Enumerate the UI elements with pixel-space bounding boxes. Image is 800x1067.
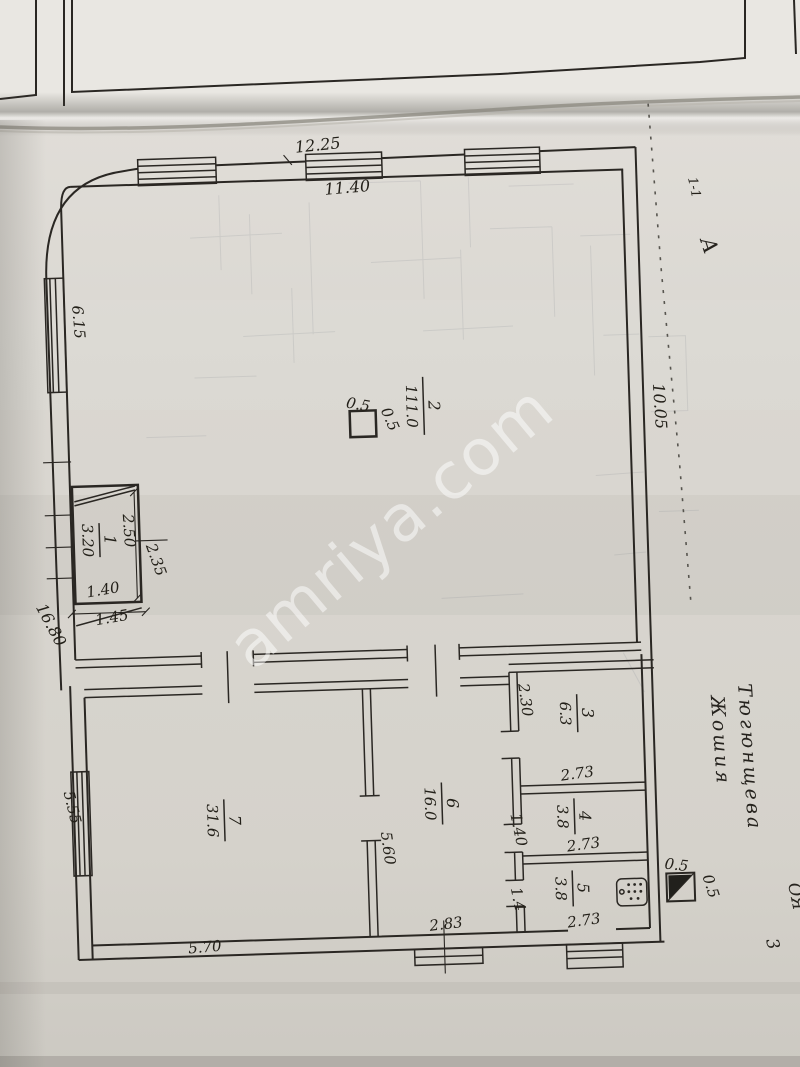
svg-text:1: 1 — [100, 534, 119, 545]
svg-text:111.0: 111.0 — [402, 385, 421, 429]
bottom-edge-shadow — [0, 1056, 800, 1067]
left-edge-shadow — [0, 120, 46, 1067]
photographed-floor-plan-sheet: 12.25 11.40 6.15 16.80 10.05 0.5 0.5 2 1… — [0, 0, 800, 1067]
dim-right-side: 10.05 — [649, 383, 671, 430]
svg-text:7: 7 — [225, 815, 244, 827]
svg-text:5: 5 — [574, 883, 593, 894]
svg-text:31.6: 31.6 — [203, 804, 222, 838]
svg-text:6: 6 — [443, 798, 462, 809]
lower-fold-shadow — [0, 982, 800, 994]
room7-dim-width: 5.70 — [187, 937, 222, 958]
svg-text:3: 3 — [578, 707, 597, 718]
light-band — [0, 300, 800, 410]
flue-dim-width: 0.5 — [664, 855, 690, 875]
svg-text:4: 4 — [575, 810, 594, 822]
room1-dim-width: 2.50 — [119, 512, 139, 548]
svg-text:16.0: 16.0 — [420, 787, 439, 821]
svg-text:3.20: 3.20 — [78, 524, 97, 558]
paper-fold-crease — [0, 92, 800, 136]
dim-left-window: 6.15 — [68, 305, 89, 340]
svg-text:6.3: 6.3 — [556, 701, 575, 725]
svg-text:3.8: 3.8 — [551, 877, 570, 901]
svg-text:3.8: 3.8 — [553, 805, 572, 829]
dim-top-inner-width: 11.40 — [324, 176, 371, 199]
floor-plan-drawing: 12.25 11.40 6.15 16.80 10.05 0.5 0.5 2 1… — [0, 0, 800, 1067]
svg-text:2: 2 — [424, 399, 443, 411]
